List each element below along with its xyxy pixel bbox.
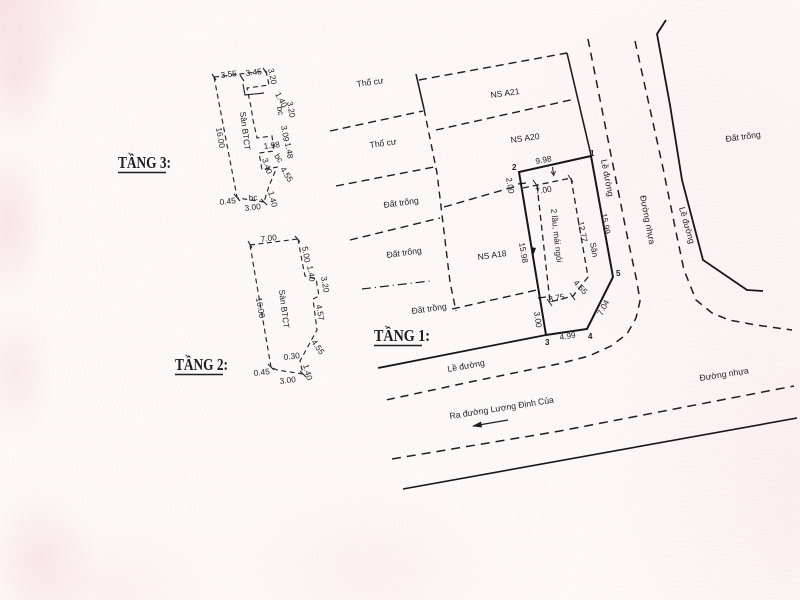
svg-text:3.45: 3.45 [245,66,263,78]
svg-text:3.75: 3.75 [548,291,566,304]
svg-text:NS A20: NS A20 [510,131,540,145]
svg-text:Đường nhựa: Đường nhựa [638,194,657,245]
svg-text:NS A21: NS A21 [490,86,520,100]
svg-text:TẦNG 2:: TẦNG 2: [175,355,228,374]
svg-text:Thổ cư: Thổ cư [356,75,385,89]
svg-text:1: 1 [590,149,595,158]
svg-text:Sân BTCT: Sân BTCT [238,111,253,151]
svg-text:12.77: 12.77 [576,220,590,243]
svg-text:3.20: 3.20 [319,276,332,294]
svg-text:3.55: 3.55 [220,68,238,80]
svg-text:Ra đường Lương Định Của: Ra đường Lương Định Của [449,395,555,421]
svg-text:Đường nhựa: Đường nhựa [699,365,750,383]
svg-text:Sân: Sân [588,241,601,258]
svg-text:3.00: 3.00 [279,374,297,386]
svg-text:TẦNG 1:: TẦNG 1: [374,326,430,345]
svg-text:9.98: 9.98 [535,153,553,166]
svg-text:16.00: 16.00 [254,297,268,320]
svg-text:1.98: 1.98 [263,139,281,151]
svg-text:bc: bc [272,151,285,164]
svg-text:3.20: 3.20 [285,101,298,119]
svg-text:15.98: 15.98 [517,242,531,265]
svg-text:Đất trống: Đất trống [725,129,762,144]
svg-text:7.00: 7.00 [260,232,278,244]
svg-text:Đất trống: Đất trống [383,195,420,210]
svg-text:4.99: 4.99 [559,330,577,342]
svg-text:7.04: 7.04 [595,298,612,317]
svg-text:Thổ cư: Thổ cư [369,136,398,150]
svg-text:3.00: 3.00 [532,311,544,329]
svg-text:4.55: 4.55 [278,165,295,184]
svg-text:7.00: 7.00 [535,184,553,196]
svg-text:4.55: 4.55 [309,337,327,356]
svg-text:5.00: 5.00 [300,246,313,264]
svg-text:1.40: 1.40 [266,190,280,209]
svg-text:4.57: 4.57 [314,304,327,322]
svg-text:3.40: 3.40 [260,157,275,176]
svg-text:1.40: 1.40 [305,265,318,283]
svg-text:Lề đường: Lề đường [447,358,486,374]
svg-text:Đất trống: Đất trống [386,245,423,260]
svg-text:2: 2 [512,163,517,172]
svg-text:bc: bc [248,192,258,203]
svg-text:16.00: 16.00 [214,127,228,150]
svg-text:2 lầu, mái ngói: 2 lầu, mái ngói [549,208,565,263]
svg-text:NS A18: NS A18 [477,248,507,262]
svg-text:2.00: 2.00 [504,177,517,195]
svg-text:0.45: 0.45 [253,366,271,378]
svg-text:Đất trồng: Đất trồng [411,301,448,316]
svg-text:Sàn BTCT: Sàn BTCT [277,289,292,329]
svg-text:0.30: 0.30 [283,350,301,362]
svg-text:3.00: 3.00 [244,201,262,213]
svg-text:bc: bc [275,106,286,116]
svg-text:3.09: 3.09 [279,125,292,143]
svg-text:15.99: 15.99 [599,212,613,235]
svg-text:1.40: 1.40 [301,363,315,382]
svg-text:3: 3 [545,338,550,347]
svg-text:0.45: 0.45 [219,195,237,207]
svg-text:5: 5 [616,269,621,278]
svg-text:TẦNG 3:: TẦNG 3: [118,153,171,172]
svg-text:4: 4 [588,332,593,341]
